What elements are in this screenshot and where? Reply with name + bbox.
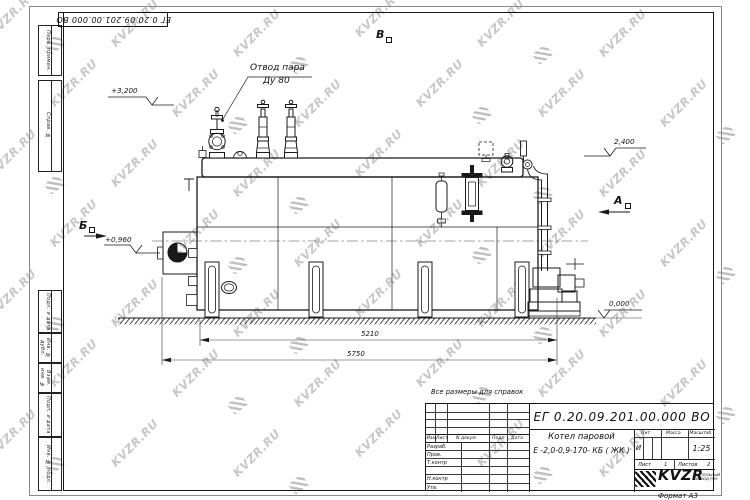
feed-pump-unit (528, 258, 584, 316)
elevation-3200: +3,200 (111, 86, 138, 95)
tb-line (426, 419, 529, 420)
tb-col-data: Дата (511, 436, 523, 441)
kvzr-logo-subtext-line2: ЗАВОД РЭУ (695, 477, 720, 482)
tb-line (426, 466, 529, 467)
view-label-v: В (376, 28, 384, 41)
tb-row-utv: Утв. (427, 485, 438, 491)
ground-line (118, 318, 642, 325)
view-label-b: Б (79, 219, 87, 232)
tb-massa-label: Масса (666, 431, 681, 436)
water-gauge-small (436, 173, 447, 227)
tb-line (661, 429, 662, 459)
casing-top-valve (501, 154, 513, 173)
tb-row-nkontr: Н.контр (427, 476, 448, 482)
tb-col-podp: Подп (492, 436, 504, 441)
tb-list-label: Лист (638, 462, 651, 468)
support-legs (205, 262, 529, 317)
tb-masshtab-value: 1:25 (688, 437, 715, 459)
steam-outlet-valve (209, 107, 225, 158)
tb-masshtab-label: Масштаб (690, 431, 712, 436)
safety-valve-1 (257, 100, 270, 158)
tb-row-tkontr: Т.контр (427, 460, 447, 466)
tb-line (489, 404, 490, 492)
tb-line (426, 412, 529, 413)
steam-outlet-label-line1: Отвод пара (250, 63, 305, 73)
tb-listov-value: 2 (707, 462, 710, 468)
tb-line (643, 437, 644, 459)
tb-line (507, 404, 508, 492)
tb-row-razrab: Разраб. (427, 444, 447, 450)
level-probe (521, 141, 533, 169)
tb-col-list: Лист (436, 436, 448, 441)
tb-doc-number: ЕГ 0.20.09.201.00.000 ВО (529, 404, 715, 429)
view-label-v-box (386, 37, 392, 43)
tb-name-line1: Котел паровой (529, 432, 634, 442)
rear-downcomer (528, 166, 552, 271)
tb-line (426, 427, 529, 428)
elevation-marks (104, 97, 646, 318)
dim-5210: 5210 (361, 330, 379, 338)
casing-dome (234, 151, 247, 158)
tb-listov-label: Листов (678, 462, 697, 468)
tb-lit-value: И (634, 437, 643, 459)
format-label: Формат А3 (658, 492, 698, 500)
view-label-b-box (89, 227, 95, 233)
tb-col-ndokum: N докум (456, 436, 476, 441)
view-label-a-box (625, 203, 631, 209)
casing-left-fitting (199, 146, 206, 158)
reference-note: Все размеры для справок (431, 388, 523, 396)
elevation-0960: +0,960 (105, 235, 132, 244)
manhole (222, 282, 237, 294)
tb-row-prov: Пров. (427, 452, 442, 458)
tb-line (426, 483, 529, 484)
tb-name-line2: Е -2,0-0,9-170- КБ ( ЖК ) (529, 446, 634, 455)
kvzr-logo-icon (635, 471, 656, 487)
elevation-0000: 0,000 (609, 299, 630, 308)
drawing-sheet: KVZR.RUKVZR.RUKVZR.RUKVZR.RUKVZR.RUKVZR.… (0, 0, 750, 500)
tb-lit-label: Лит (641, 431, 650, 436)
boiler-body (184, 158, 538, 310)
burner-front (158, 232, 198, 306)
tb-col-izm: Изм (427, 436, 436, 441)
elevation-2400: 2,400 (614, 137, 635, 146)
steam-outlet-label-line2: Ду 80 (263, 76, 290, 86)
tb-list-value: 1 (664, 462, 667, 468)
water-gauge-column (462, 165, 483, 222)
dim-5750: 5750 (347, 350, 365, 358)
view-label-a: А (614, 194, 623, 207)
kvzr-logo-subtext: КОТЕЛЬНЫЙ ЗАВОД РЭУ (695, 473, 720, 482)
safety-valve-2 (285, 100, 298, 158)
tb-line (652, 437, 653, 459)
view-arrows (84, 209, 630, 238)
